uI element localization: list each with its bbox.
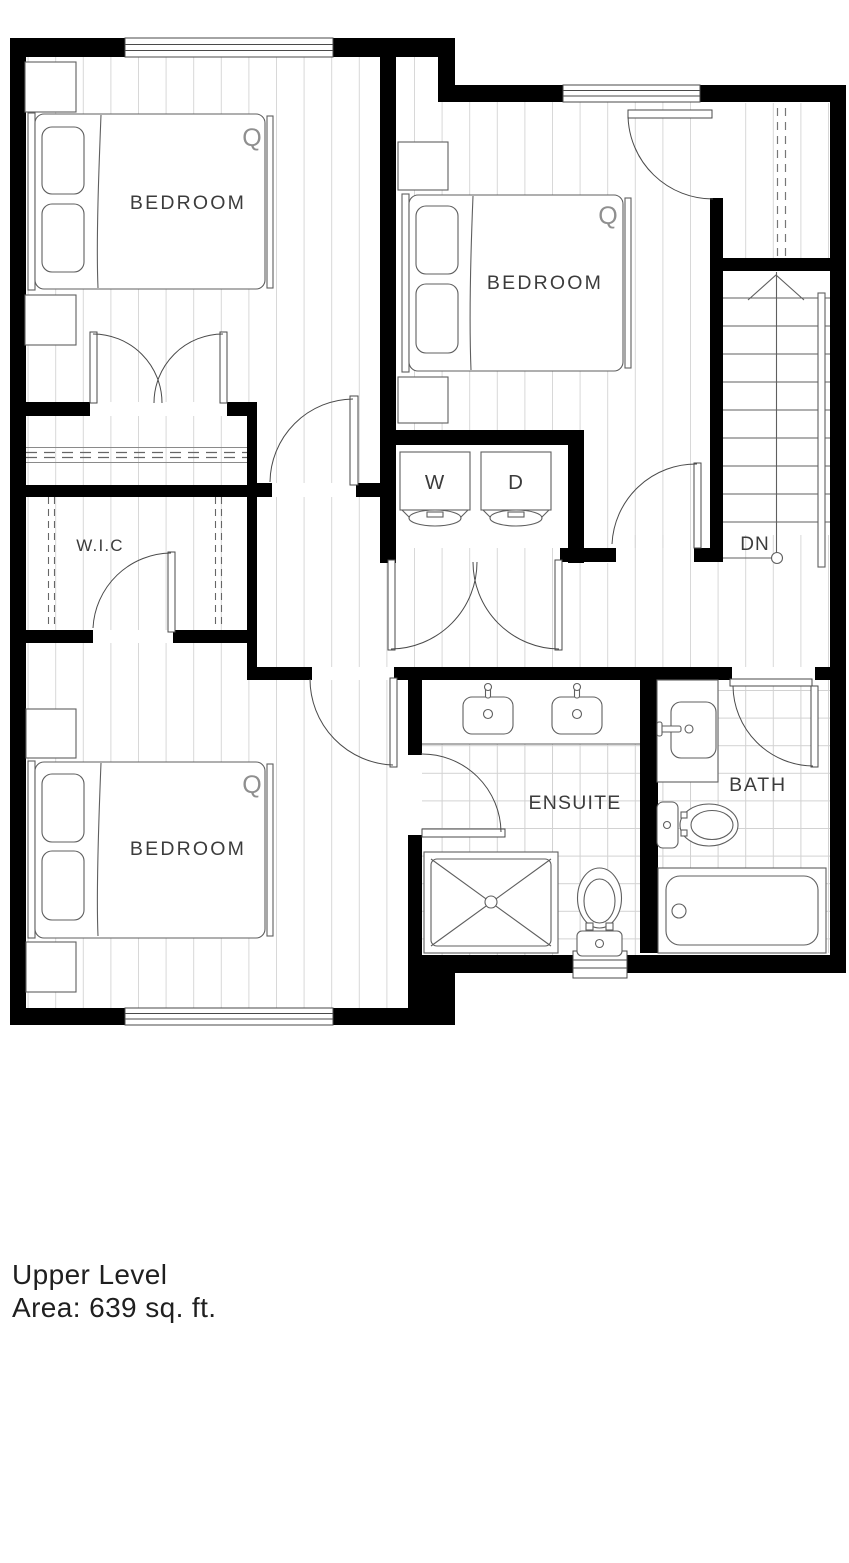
label-bedroom-bottom-left: BEDROOM <box>130 838 246 860</box>
shower <box>424 852 558 953</box>
ensuite-toilet <box>577 868 622 956</box>
label-stairs-down: DN <box>740 534 769 555</box>
label-bedroom-top-right: BEDROOM <box>487 272 603 294</box>
label-wic: W.I.C <box>76 536 124 555</box>
floor-closet-strip <box>26 416 247 485</box>
plan-area: Area: 639 sq. ft. <box>12 1292 216 1324</box>
bed-brand-mark: Q <box>598 202 617 230</box>
bed-brand-mark: Q <box>242 771 261 799</box>
stairs-handrail <box>818 293 825 567</box>
ensuite-vanity <box>422 680 640 744</box>
washer: W <box>400 452 470 526</box>
bath-toilet <box>657 802 738 848</box>
bath-vanity <box>657 680 718 782</box>
floor-wic <box>26 497 247 630</box>
bathtub <box>658 868 826 953</box>
dryer: D <box>481 452 551 526</box>
floor-plan-page: Q Q Q W <box>0 0 849 1563</box>
plan-title: Upper Level <box>12 1259 167 1291</box>
label-bath: BATH <box>729 774 787 796</box>
bed-brand-mark: Q <box>242 124 261 152</box>
floor-plan-drawing: Q Q Q W <box>0 0 849 1563</box>
dryer-label: D <box>508 471 524 494</box>
label-bedroom-top-left: BEDROOM <box>130 192 246 214</box>
window-top-right <box>563 85 700 102</box>
window-bottom-left <box>125 1008 333 1025</box>
washer-label: W <box>425 471 445 494</box>
label-ensuite: ENSUITE <box>529 792 622 814</box>
floor-top-right-closet <box>723 103 830 258</box>
stairs-newel-post <box>772 553 783 564</box>
staircase <box>723 271 830 567</box>
window-top-left <box>125 38 333 57</box>
